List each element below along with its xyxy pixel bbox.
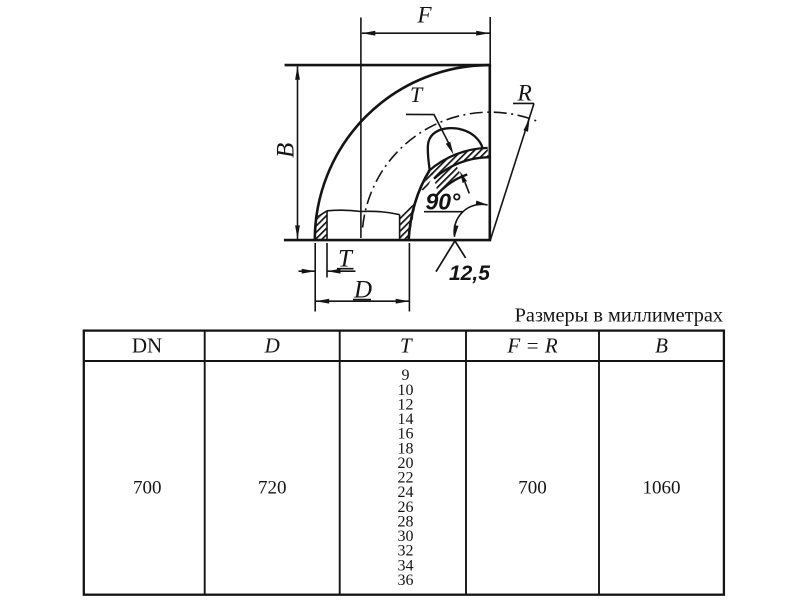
svg-text:1060: 1060: [643, 477, 681, 498]
svg-text:D: D: [264, 334, 280, 358]
svg-text:36: 36: [398, 572, 414, 589]
svg-text:700: 700: [518, 477, 547, 498]
svg-text:12,5: 12,5: [449, 262, 490, 285]
svg-text:F = R: F = R: [506, 334, 557, 358]
svg-text:T: T: [400, 334, 413, 358]
svg-text:Размеры в миллиметрах: Размеры в миллиметрах: [515, 305, 723, 327]
svg-text:T: T: [410, 82, 424, 107]
svg-text:720: 720: [258, 477, 287, 498]
svg-text:DN: DN: [132, 334, 162, 358]
svg-text:B: B: [655, 334, 668, 358]
svg-text:B: B: [273, 143, 300, 158]
svg-text:700: 700: [133, 477, 162, 498]
svg-text:90°: 90°: [426, 189, 462, 215]
svg-text:F: F: [417, 3, 433, 28]
svg-text:R: R: [517, 81, 532, 107]
